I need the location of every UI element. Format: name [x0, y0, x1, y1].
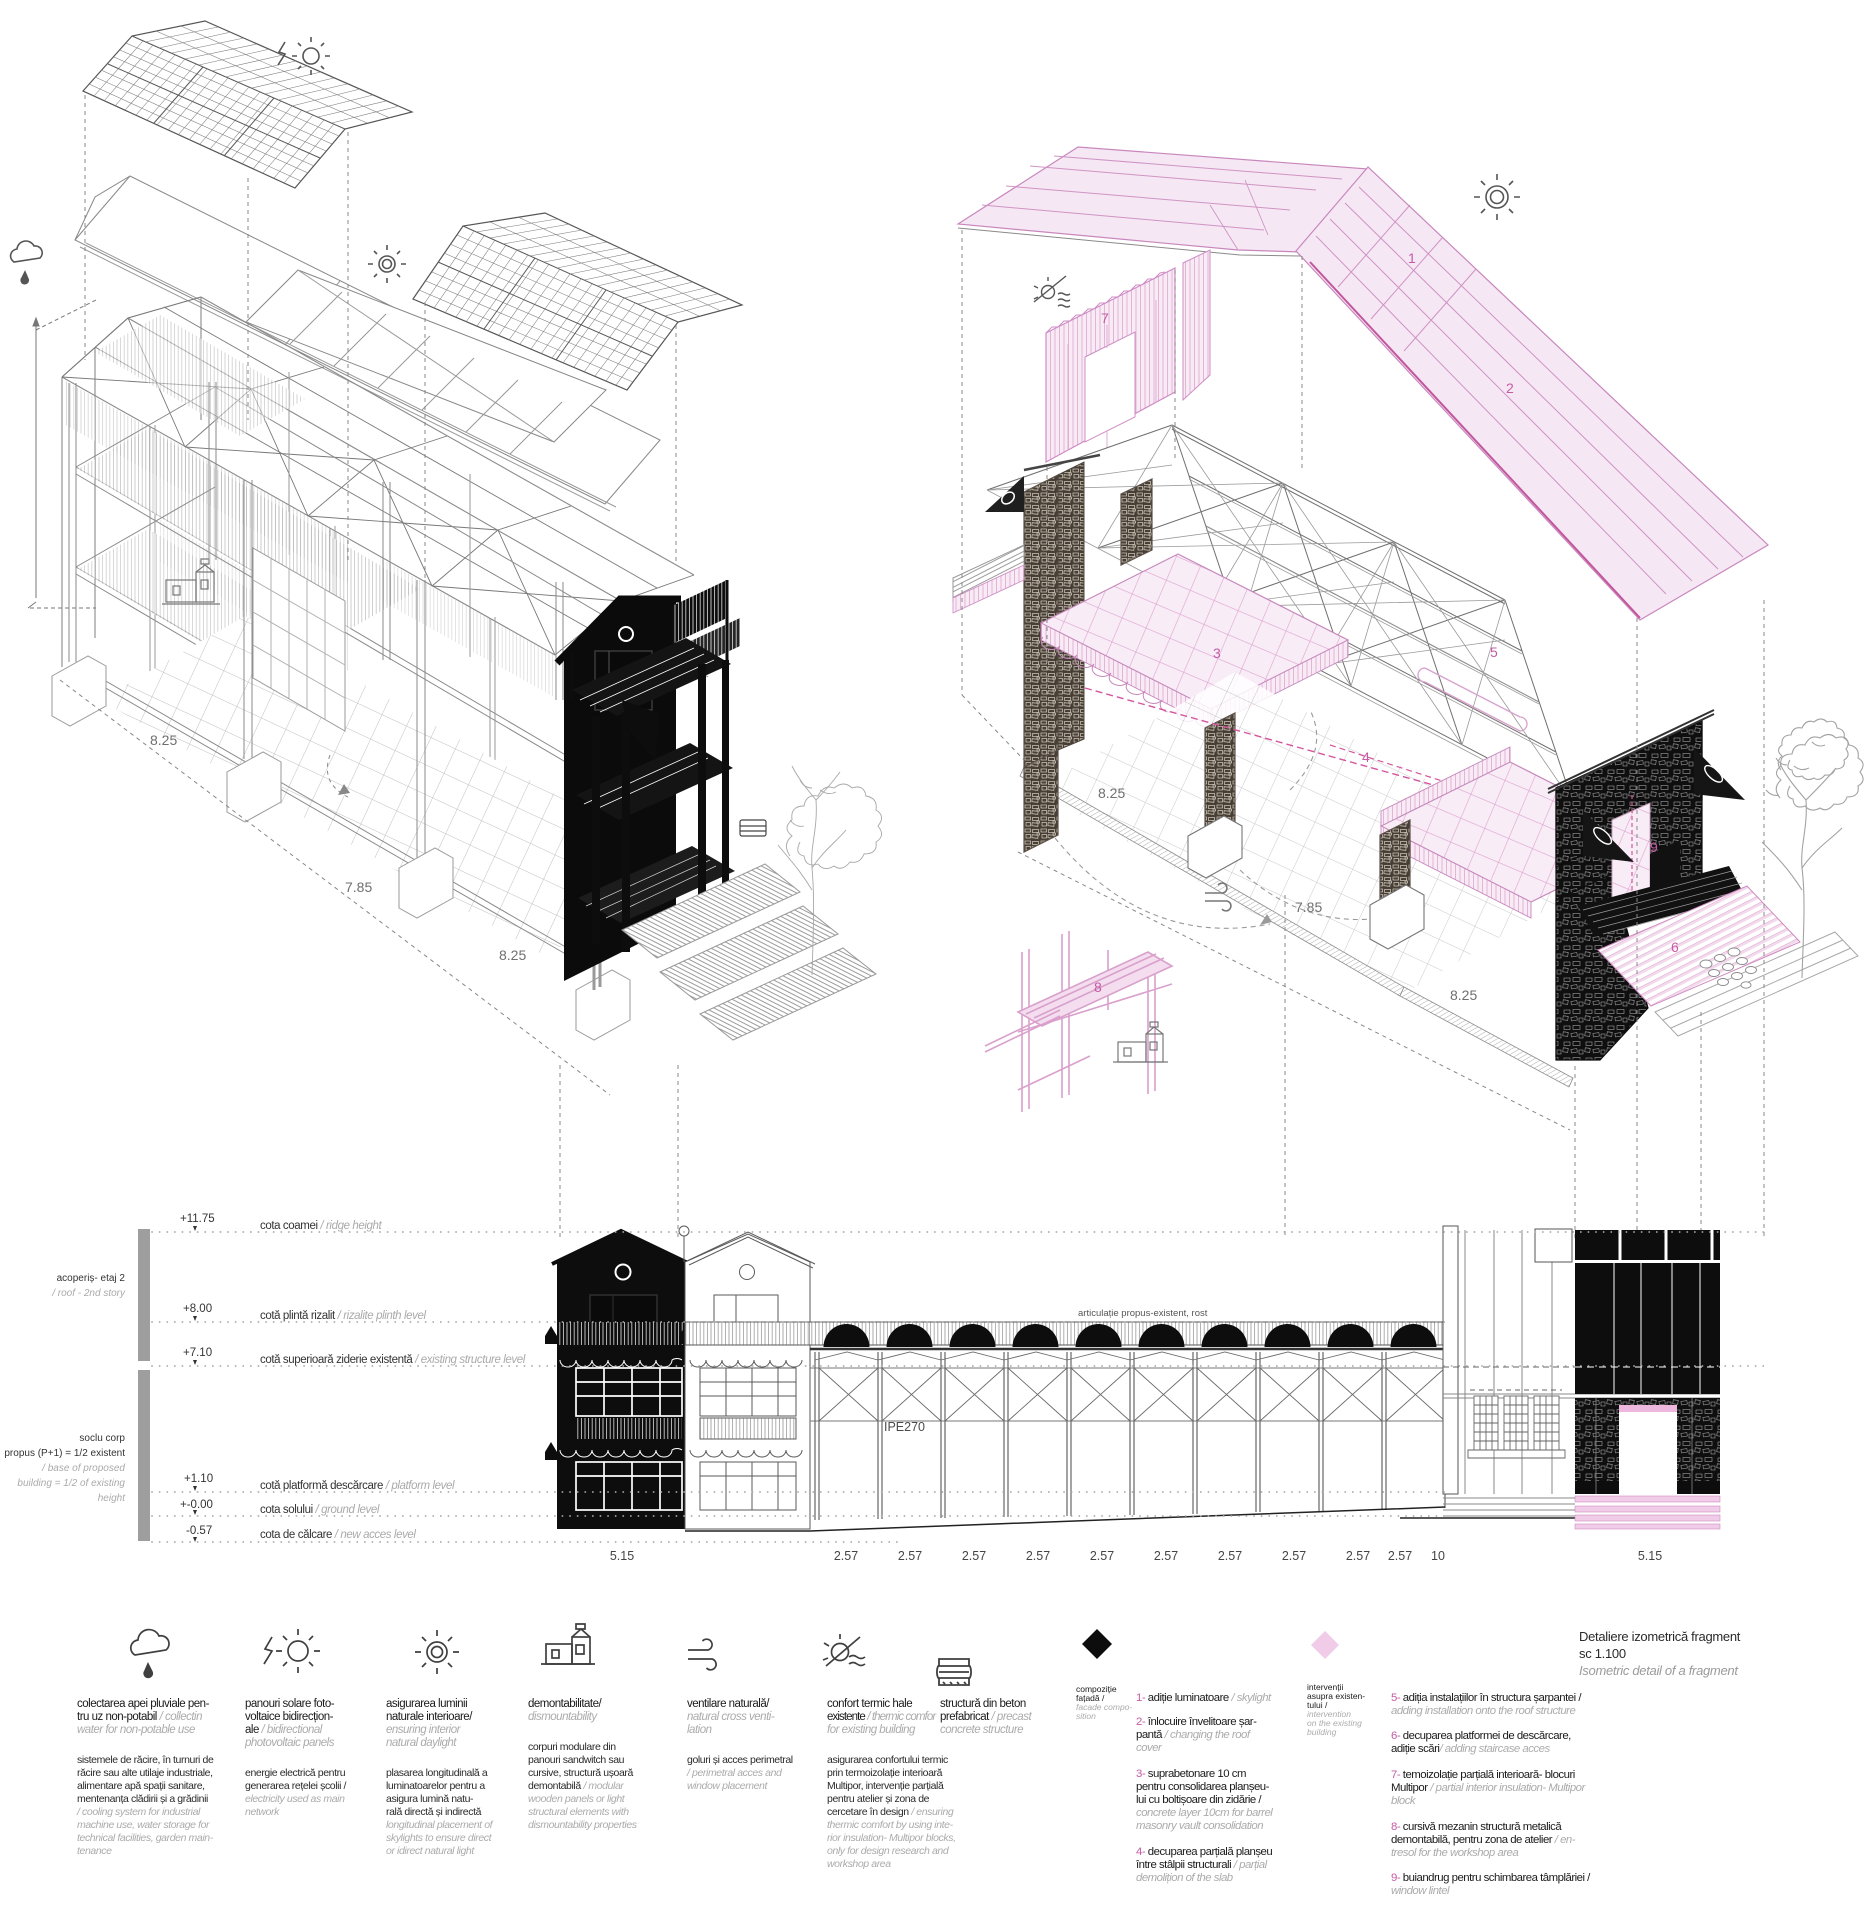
svg-text:/ cooling system for industria: / cooling system for industrial [76, 1806, 201, 1818]
svg-text:cover: cover [1136, 1742, 1163, 1754]
svg-text:demolițion of the slab: demolițion of the slab [1136, 1872, 1233, 1884]
svg-text:2: 2 [1506, 380, 1514, 396]
svg-text:prin termoizolație interioară: prin termoizolație interioară [827, 1767, 943, 1779]
svg-text:articulație propus-existent, r: articulație propus-existent, rost [1078, 1308, 1208, 1319]
svg-text:building: building [1307, 1727, 1337, 1737]
svg-text:5.15: 5.15 [1638, 1549, 1662, 1563]
svg-text:cota coamei / ridge height: cota coamei / ridge height [260, 1220, 383, 1232]
svg-text:concrete structure: concrete structure [940, 1724, 1023, 1736]
svg-text:rior insulation- Multipor bloc: rior insulation- Multipor blocks, [827, 1832, 956, 1844]
svg-text:pentru consolidarea planșeu-: pentru consolidarea planșeu- [1136, 1781, 1270, 1793]
svg-text:plasarea longitudinală a: plasarea longitudinală a [386, 1767, 488, 1779]
svg-text:1- adiție luminatoare / skyli: 1- adiție luminatoare / skylight [1136, 1692, 1272, 1704]
svg-text:Multipor, intervenție parțială: Multipor, intervenție parțială [827, 1780, 944, 1792]
svg-text:4- decuparea parțială planșeu: 4- decuparea parțială planșeu [1136, 1846, 1272, 1858]
svg-text:5: 5 [1490, 644, 1498, 660]
svg-text:luminatoarelor pentru a: luminatoarelor pentru a [386, 1780, 485, 1792]
svg-text:only for design research and: only for design research and [827, 1845, 950, 1857]
svg-text:lation: lation [687, 1724, 712, 1736]
svg-text:Detaliere izometrică fragment: Detaliere izometrică fragment [1579, 1629, 1741, 1644]
svg-text:2- înlocuire învelitoare șar-: 2- înlocuire învelitoare șar- [1136, 1716, 1257, 1728]
svg-text:+-0.00: +-0.00 [180, 1499, 213, 1511]
svg-text:energie electrică pentru: energie electrică pentru [245, 1767, 346, 1779]
svg-text:pantă / changing the roof: pantă / changing the roof [1136, 1729, 1252, 1741]
svg-text:8.25: 8.25 [499, 947, 526, 963]
svg-text:+7.10: +7.10 [183, 1347, 212, 1359]
svg-text:ensuring interior: ensuring interior [386, 1724, 462, 1736]
svg-text:asigurarea luminii: asigurarea luminii [386, 1698, 467, 1710]
svg-text:generarea rețelei școlii /: generarea rețelei școlii / [245, 1780, 347, 1792]
svg-text:cotă superioară ziderie existe: cotă superioară ziderie existentă / exis… [260, 1354, 526, 1366]
svg-text:height: height [98, 1493, 126, 1504]
svg-text:window placement: window placement [687, 1780, 768, 1792]
svg-text:adding installation onto the r: adding installation onto the roof struct… [1391, 1705, 1575, 1717]
svg-text:tenance: tenance [77, 1845, 112, 1857]
svg-text:între stâlpii structurali / pa: între stâlpii structurali / parțial [1135, 1859, 1268, 1871]
svg-text:cursive, structură ușoară: cursive, structură ușoară [528, 1767, 634, 1779]
svg-text:dismountability: dismountability [528, 1711, 598, 1723]
svg-text:demontabilă, pentru zona de at: demontabilă, pentru zona de atelier / en… [1391, 1834, 1576, 1846]
svg-text:workshop area: workshop area [827, 1858, 891, 1870]
svg-text:2.57: 2.57 [1090, 1549, 1114, 1563]
svg-text:1: 1 [1408, 250, 1416, 266]
svg-text:2.57: 2.57 [898, 1549, 922, 1563]
svg-text:prefabricat / precast: prefabricat / precast [940, 1711, 1032, 1723]
svg-text:8.25: 8.25 [1098, 785, 1125, 801]
svg-text:voltaice bidirecțion-: voltaice bidirecțion- [245, 1711, 334, 1723]
svg-text:/ perimetral acces and: / perimetral acces and [686, 1767, 783, 1779]
svg-text:adiție scări/ adding staircase: adiție scări/ adding staircase acces [1391, 1743, 1550, 1755]
svg-text:machine use, water storage for: machine use, water storage for [77, 1819, 210, 1831]
svg-text:cotă plintă rizalit / rizalit: cotă plintă rizalit / rizalite plinth le… [260, 1310, 426, 1322]
svg-text:asigura lumină natu-: asigura lumină natu- [386, 1793, 474, 1805]
svg-text:goluri și acces perimetral: goluri și acces perimetral [687, 1754, 793, 1766]
svg-text:technical facilities, garden m: technical facilities, garden main- [77, 1832, 214, 1844]
svg-text:network: network [245, 1806, 280, 1818]
svg-text:Multipor / partial interior in: Multipor / partial interior insulation- … [1391, 1782, 1586, 1794]
svg-text:8: 8 [1094, 979, 1102, 995]
svg-text:/ roof - 2nd story: / roof - 2nd story [51, 1288, 126, 1299]
svg-text:tresol for the workshop area: tresol for the workshop area [1391, 1847, 1518, 1859]
svg-text:longitudinal placement of: longitudinal placement of [386, 1819, 494, 1831]
svg-text:6- decuparea platformei de des: 6- decuparea platformei de descărcare, [1391, 1730, 1571, 1742]
svg-text:alimentare apă spații sanitare: alimentare apă spații sanitare, [77, 1780, 205, 1792]
svg-text:acoperiș- etaj 2: acoperiș- etaj 2 [57, 1273, 126, 1284]
svg-text:existente / thermic comfor: existente / thermic comfor [827, 1711, 937, 1723]
svg-text:colectarea apei pluviale pen-: colectarea apei pluviale pen- [77, 1698, 210, 1710]
svg-text:mentenanța clădirii și a grădi: mentenanța clădirii și a grădinii [77, 1793, 208, 1805]
svg-text:rală directă și indirectă: rală directă și indirectă [386, 1806, 482, 1818]
svg-text:natural cross venti-: natural cross venti- [687, 1711, 775, 1723]
svg-text:skylights to ensure direct: skylights to ensure direct [386, 1832, 493, 1844]
svg-text:+1.10: +1.10 [184, 1473, 213, 1485]
svg-text:corpuri modulare din: corpuri modulare din [528, 1741, 616, 1753]
svg-text:IPE270: IPE270 [884, 1420, 925, 1434]
svg-text:ale / bidirectional: ale / bidirectional [245, 1724, 323, 1736]
svg-text:7- temoizolație parțială inter: 7- temoizolație parțială interioară- blo… [1391, 1769, 1575, 1781]
svg-text:2.57: 2.57 [1282, 1549, 1306, 1563]
svg-text:masonry vault consolidation: masonry vault consolidation [1136, 1820, 1263, 1832]
svg-text:wooden panels or light: wooden panels or light [528, 1793, 626, 1805]
svg-text:panouri sandwitch sau: panouri sandwitch sau [528, 1754, 625, 1766]
svg-text:cota solului / ground level: cota solului / ground level [260, 1504, 380, 1516]
svg-text:electricity used as main: electricity used as main [245, 1793, 345, 1805]
svg-text:8- cursivă mezanin structură m: 8- cursivă mezanin structură metalică [1391, 1821, 1562, 1833]
svg-text:-0.57: -0.57 [186, 1525, 212, 1537]
svg-text:6: 6 [1671, 939, 1679, 955]
svg-text:panouri solare foto-: panouri solare foto- [245, 1698, 335, 1710]
svg-text:photovoltaic panels: photovoltaic panels [244, 1737, 335, 1749]
svg-text:demontabilitate/: demontabilitate/ [528, 1698, 602, 1710]
svg-text:+11.75: +11.75 [180, 1213, 215, 1225]
svg-text:7.85: 7.85 [345, 879, 372, 895]
svg-text:or idirect natural light: or idirect natural light [386, 1845, 475, 1857]
svg-text:8.25: 8.25 [150, 732, 177, 748]
svg-text:4: 4 [1362, 749, 1370, 765]
svg-text:structură din beton: structură din beton [940, 1698, 1026, 1710]
svg-text:block: block [1391, 1795, 1417, 1807]
svg-text:Isometric detail of a fragment: Isometric detail of a fragment [1579, 1663, 1739, 1678]
svg-text:9- buiandrug pentru schimbarea: 9- buiandrug pentru schimbarea tâmplărie… [1391, 1872, 1591, 1884]
svg-text:sition: sition [1076, 1711, 1096, 1721]
svg-text:asigurarea confortului termic: asigurarea confortului termic [827, 1754, 948, 1766]
svg-text:pentru atelier și zona de: pentru atelier și zona de [827, 1793, 930, 1805]
svg-text:tru uz non-potabil / collectin: tru uz non-potabil / collectin [77, 1711, 202, 1723]
svg-text:lui cu boltișoare din zidărie: lui cu boltișoare din zidărie / [1136, 1794, 1262, 1806]
svg-text:window lintel: window lintel [1391, 1885, 1450, 1897]
svg-text:2.57: 2.57 [962, 1549, 986, 1563]
svg-text:cercetare în design / ensuring: cercetare în design / ensuring [827, 1806, 954, 1818]
svg-text:5- adiția instalațiilor în str: 5- adiția instalațiilor în structura șar… [1391, 1692, 1582, 1704]
svg-text:2.57: 2.57 [1026, 1549, 1050, 1563]
svg-text:sistemele de răcire, în turnur: sistemele de răcire, în turnuri de [77, 1754, 214, 1766]
svg-text:3: 3 [1213, 645, 1221, 661]
svg-text:natural daylight: natural daylight [386, 1737, 457, 1749]
svg-text:soclu corp: soclu corp [79, 1433, 125, 1444]
svg-text:2.57: 2.57 [1218, 1549, 1242, 1563]
svg-text:2.57: 2.57 [1346, 1549, 1370, 1563]
svg-text:răcire sau alte utilaje indust: răcire sau alte utilaje industriale, [77, 1767, 213, 1779]
svg-text:5.15: 5.15 [610, 1549, 634, 1563]
svg-text:10: 10 [1431, 1549, 1445, 1563]
svg-text:cota de călcare / new acces le: cota de călcare / new acces level [260, 1529, 416, 1541]
svg-text:2.57: 2.57 [1154, 1549, 1178, 1563]
svg-text:2.57: 2.57 [834, 1549, 858, 1563]
svg-text:for existing building: for existing building [827, 1724, 916, 1736]
svg-text:ventilare naturală/: ventilare naturală/ [687, 1698, 770, 1710]
svg-text:9: 9 [1650, 839, 1658, 855]
svg-text:3- suprabetonare 10 cm: 3- suprabetonare 10 cm [1136, 1768, 1246, 1780]
svg-text:7: 7 [1101, 310, 1109, 326]
svg-text:propus (P+1) = 1/2 existent: propus (P+1) = 1/2 existent [4, 1448, 125, 1459]
svg-text:naturale interioare/: naturale interioare/ [386, 1711, 473, 1723]
svg-text:+8.00: +8.00 [183, 1303, 212, 1315]
svg-text:cotă platformă descărcare / pl: cotă platformă descărcare / platform lev… [260, 1480, 455, 1492]
svg-text:8.25: 8.25 [1450, 987, 1477, 1003]
svg-text:dismountability properties: dismountability properties [528, 1819, 638, 1831]
svg-text:water for non-potable use: water for non-potable use [77, 1724, 195, 1736]
svg-text:building = 1/2 of existing: building = 1/2 of existing [17, 1478, 125, 1489]
svg-text:7.85: 7.85 [1295, 899, 1322, 915]
svg-text:2.57: 2.57 [1388, 1549, 1412, 1563]
svg-text:/ base of proposed: / base of proposed [41, 1463, 125, 1474]
svg-text:sc 1.100: sc 1.100 [1579, 1646, 1626, 1661]
svg-text:demontabilă / modular: demontabilă / modular [528, 1780, 624, 1792]
svg-text:concrete layer 10cm for barrel: concrete layer 10cm for barrel [1136, 1807, 1273, 1819]
svg-text:confort termic hale: confort termic hale [827, 1698, 912, 1710]
svg-text:structural elements with: structural elements with [528, 1806, 629, 1818]
svg-text:thermic comfort by using inte-: thermic comfort by using inte- [827, 1819, 954, 1831]
